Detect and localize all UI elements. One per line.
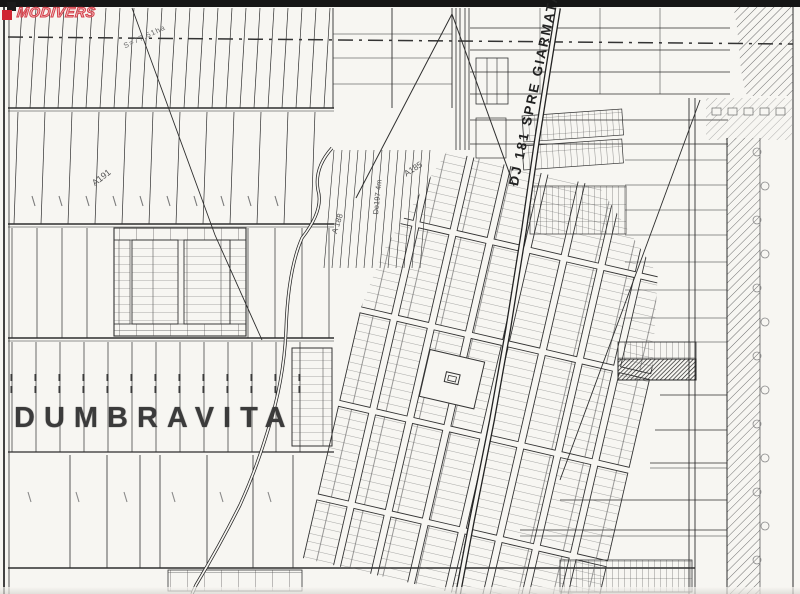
cadastral-map-scan: DUMBRAVITA DJ 181 SPRE GIARMATA S=77,51h…	[0, 0, 800, 594]
scan-edge-smudge	[0, 587, 800, 594]
map-canvas	[0, 0, 800, 594]
village-street-grid	[291, 126, 693, 594]
watermark-logo-red-square-icon	[2, 10, 12, 20]
watermark-text: MODIVERS	[16, 4, 96, 20]
locality-label: DUMBRAVITA	[14, 402, 295, 435]
